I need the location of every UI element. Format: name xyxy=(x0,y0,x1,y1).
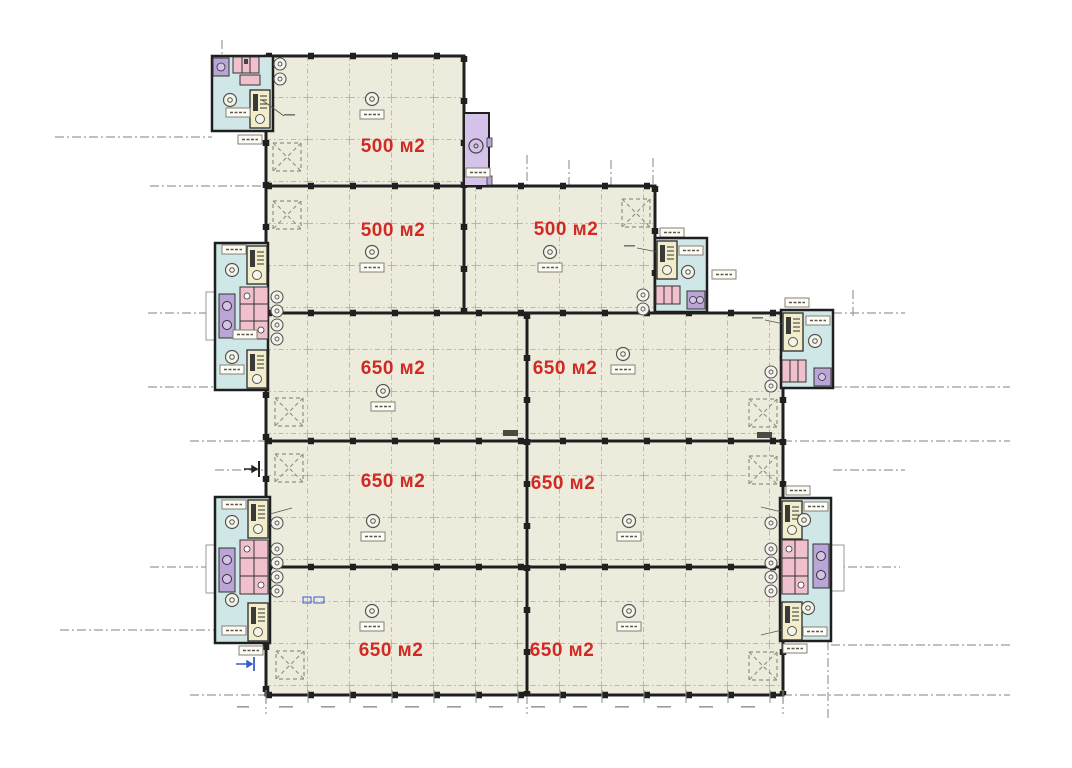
level-marker-icon xyxy=(367,515,380,528)
elevation-tag xyxy=(360,622,384,631)
level-marker-icon xyxy=(544,246,557,259)
door-marker-icon xyxy=(274,73,286,85)
level-marker-icon xyxy=(798,514,811,527)
sink-fixture-icon xyxy=(813,544,829,588)
elevation-tag xyxy=(226,108,250,117)
door-marker-icon xyxy=(274,58,286,70)
elevator-shaft xyxy=(464,113,492,186)
level-marker-icon xyxy=(682,266,695,279)
door-marker-icon xyxy=(271,543,283,555)
level-marker-icon xyxy=(224,94,237,107)
level-marker-icon xyxy=(809,335,822,348)
level-marker-icon xyxy=(366,93,379,106)
stair-icon xyxy=(657,241,677,279)
door-marker-icon xyxy=(765,380,777,392)
wall-tag xyxy=(757,432,772,438)
floor-plan-canvas: 500 м2 500 м2 500 м2 650 м2 650 м2 650 м… xyxy=(0,0,1072,768)
stair-icon xyxy=(247,246,267,284)
elevation-tag xyxy=(233,330,257,339)
level-marker-icon xyxy=(226,351,239,364)
door-marker-icon xyxy=(271,305,283,317)
door-marker-icon xyxy=(271,291,283,303)
area-label-row2-left: 500 м2 xyxy=(361,220,426,242)
elevation-tag xyxy=(466,168,490,177)
elevation-tag xyxy=(361,532,385,541)
door-marker-icon xyxy=(271,571,283,583)
elevation-tag xyxy=(220,365,244,374)
canopy-outline xyxy=(831,545,844,591)
level-marker-icon xyxy=(617,348,630,361)
area-label-row3-left: 650 м2 xyxy=(361,358,426,380)
elevation-tag xyxy=(660,228,684,237)
stair-icon xyxy=(247,350,267,388)
door-marker-icon xyxy=(765,585,777,597)
elevation-tag xyxy=(804,502,828,511)
elevation-tag xyxy=(617,622,641,631)
wall-tag xyxy=(503,430,518,436)
stair-icon xyxy=(250,90,270,128)
elevation-tag xyxy=(803,627,827,636)
dimension-figures xyxy=(237,706,755,708)
level-marker-icon xyxy=(623,605,636,618)
elevation-tag xyxy=(786,486,810,495)
elevation-tag xyxy=(360,263,384,272)
level-marker-icon xyxy=(226,594,239,607)
toilet-fixture-icon xyxy=(240,75,260,85)
section-arrow-blue-icon xyxy=(236,661,252,667)
door-marker-icon xyxy=(271,333,283,345)
elevation-tag xyxy=(806,316,830,325)
area-label-row5-left: 650 м2 xyxy=(359,640,424,662)
level-marker-icon xyxy=(802,602,815,615)
sink-fixture-icon xyxy=(219,548,235,592)
elevation-tag xyxy=(371,402,395,411)
door-marker-icon xyxy=(637,289,649,301)
leader-label xyxy=(624,245,635,247)
leader-label xyxy=(752,317,763,319)
area-label-row1: 500 м2 xyxy=(361,136,426,158)
level-marker-icon xyxy=(366,246,379,259)
section-arrow-icon xyxy=(244,466,257,472)
elevation-tag xyxy=(222,245,246,254)
door-marker-icon xyxy=(271,585,283,597)
door-marker-icon xyxy=(637,303,649,315)
door-marker-icon xyxy=(765,366,777,378)
toilet-fixture-icon xyxy=(782,360,806,382)
stair-icon xyxy=(248,603,268,641)
stair-icon xyxy=(248,500,268,538)
elevation-tag xyxy=(783,644,807,653)
door-marker-icon xyxy=(765,543,777,555)
level-marker-icon xyxy=(226,516,239,529)
level-marker-icon xyxy=(226,264,239,277)
toilet-fixture-icon xyxy=(233,57,259,73)
elevation-tag xyxy=(712,270,736,279)
toilet-fixture-icon xyxy=(656,286,680,304)
area-label-row3-right: 650 м2 xyxy=(533,358,598,380)
door-marker-icon xyxy=(271,517,283,529)
elevation-tag xyxy=(222,500,246,509)
door-marker-icon xyxy=(271,319,283,331)
elevation-tag xyxy=(222,626,246,635)
elevation-tag xyxy=(360,110,384,119)
stair-icon xyxy=(783,313,803,351)
area-label-row4-left: 650 м2 xyxy=(361,471,426,493)
elevation-tag xyxy=(617,532,641,541)
elevation-tag xyxy=(239,646,263,655)
level-marker-icon xyxy=(623,515,636,528)
interior-grid xyxy=(268,58,781,693)
elevation-tag xyxy=(611,365,635,374)
door-marker-icon xyxy=(765,571,777,583)
stair-icon xyxy=(782,602,802,640)
area-label-row4-right: 650 м2 xyxy=(531,473,596,495)
elevation-tag xyxy=(785,298,809,307)
elevation-tag xyxy=(538,263,562,272)
door-marker-icon xyxy=(271,557,283,569)
elevation-tag xyxy=(679,246,703,255)
door-marker-icon xyxy=(765,557,777,569)
door-marker-icon xyxy=(765,517,777,529)
level-marker-icon xyxy=(377,385,390,398)
area-label-row5-right: 650 м2 xyxy=(530,640,595,662)
level-marker-icon xyxy=(366,605,379,618)
elevation-tag xyxy=(238,135,262,144)
leader-label xyxy=(284,114,295,116)
area-label-row2-right: 500 м2 xyxy=(534,219,599,241)
